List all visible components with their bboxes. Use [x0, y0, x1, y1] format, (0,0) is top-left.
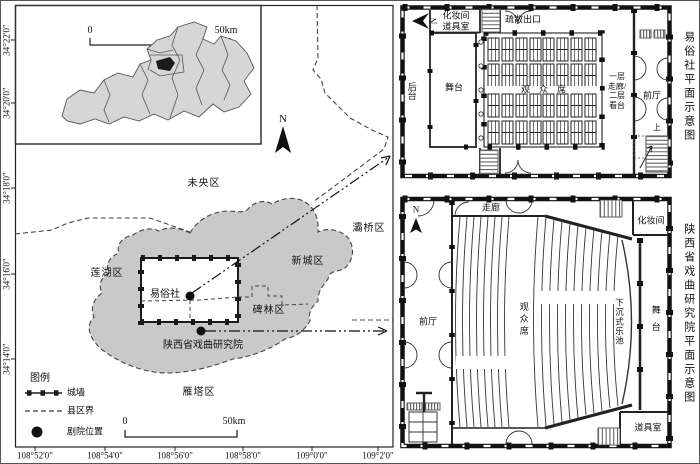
district-label-baqiao: 灞桥区	[353, 224, 386, 235]
yisu-props-label: 道具室	[442, 22, 469, 31]
yisu-up-label: 上	[653, 124, 661, 132]
north-label-research: N	[413, 205, 420, 214]
research-audience-label: 观众席	[518, 302, 527, 338]
theater-label-yisu: 易俗社	[150, 290, 180, 301]
figure-graphics	[0, 0, 700, 464]
district-label-beilin: 碑林区	[253, 306, 286, 317]
inset-scale-zero: 0	[88, 26, 93, 37]
district-label-weiyang: 未央区	[188, 179, 221, 190]
x-axis-label: 108°58'0"	[225, 451, 261, 460]
yisu-plan-title: 易俗社平面示意图	[682, 31, 694, 143]
theater-label-research: 陕西省戏曲研究院	[163, 341, 243, 352]
y-axis-label: 34°14'0"	[2, 343, 11, 374]
x-axis-label: 108°52'0"	[17, 451, 53, 460]
main-scale-zero: 0	[123, 417, 128, 428]
district-label-xincheng: 新城区	[292, 257, 325, 268]
main-scale-fifty: 50km	[223, 417, 246, 428]
legend-item-wall: 城墙	[67, 388, 85, 397]
legend-item-boundary: 县区界	[67, 406, 94, 415]
north-label-map: N	[279, 114, 287, 126]
x-axis-label: 108°56'0"	[157, 451, 193, 460]
research-stage-label: 舞台	[650, 305, 659, 339]
y-axis-label: 34°16'0"	[2, 258, 11, 289]
marker-research	[197, 327, 206, 336]
plan-research	[403, 199, 670, 446]
yisu-audience-label: 观众席	[521, 85, 575, 94]
legend-item-location: 剧院位置	[67, 427, 103, 436]
yisu-lobby-label: 前厅	[643, 91, 661, 100]
research-cross-aisle-right	[535, 291, 621, 304]
yisu-stage-label: 舞台	[445, 83, 463, 92]
research-corridor-label: 走廊	[482, 203, 500, 212]
research-makeup-label: 化妆间	[637, 216, 664, 225]
research-pit-label: 下沉式乐池	[615, 298, 624, 346]
x-axis-label: 108°54'0"	[87, 451, 123, 460]
y-axis-label: 34°18'0"	[2, 172, 11, 203]
inset-scale-fifty: 50km	[215, 26, 238, 37]
yisu-corridor-note: 一层 走廊/ 二层 看台	[608, 72, 626, 110]
x-axis-label: 109°0'0"	[296, 451, 327, 460]
legend-title: 图例	[30, 374, 50, 385]
yisu-backstage-label: 后台	[406, 82, 415, 100]
district-label-yanta: 雁塔区	[183, 388, 216, 399]
research-props-label: 道具室	[634, 423, 661, 432]
research-cross-aisle-left	[456, 356, 513, 369]
research-lobby-label: 前厅	[419, 317, 437, 326]
north-label-yisu: N	[429, 18, 438, 25]
y-axis-label: 34°20'0"	[2, 87, 11, 118]
figure: 34°22'0" 34°20'0" 34°18'0" 34°16'0" 34°1…	[0, 0, 700, 464]
y-axis-label: 34°22'0"	[2, 24, 11, 55]
research-plan-title: 陕西省戏曲研究院平面示意图	[682, 223, 694, 405]
yisu-exit-label: 疏散出口	[505, 15, 541, 24]
district-label-lianhu: 莲湖区	[91, 269, 124, 280]
x-axis-label: 109°2'0"	[362, 451, 393, 460]
yisu-makeup-label: 化妆间	[442, 11, 469, 20]
